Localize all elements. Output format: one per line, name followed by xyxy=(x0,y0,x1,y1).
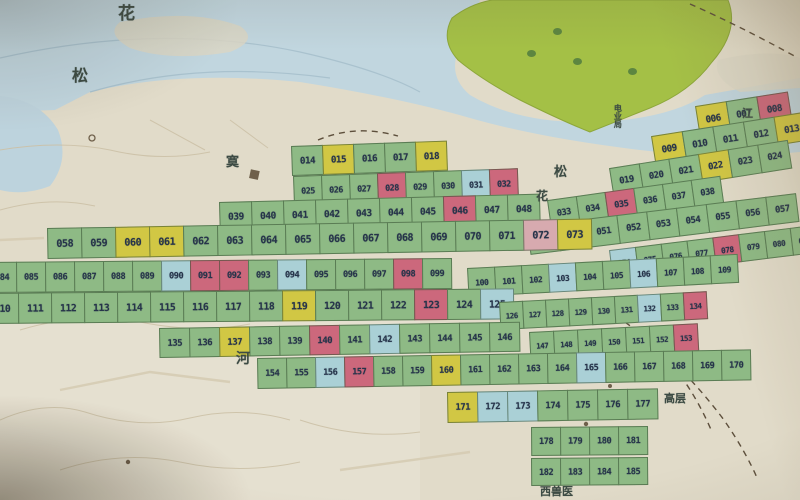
map-labels: 花松寞松花江河高层西兽医电业局 xyxy=(0,0,800,500)
map-label: 西兽医 xyxy=(540,486,573,498)
park-tree-icon xyxy=(628,68,637,75)
map-label: 电业局 xyxy=(614,104,622,128)
park-tree-icon xyxy=(527,50,536,57)
park-tree-icon xyxy=(573,58,582,65)
map-label: 河 xyxy=(236,352,250,367)
map-label: 花 xyxy=(536,190,548,203)
park-tree-icon xyxy=(553,28,562,35)
map-label: 寞 xyxy=(226,156,239,170)
map-label: 花 xyxy=(118,6,135,24)
map-label: 松 xyxy=(554,166,567,180)
map-photo: 0060070080090100110120130140150160170180… xyxy=(0,0,800,500)
map-label: 松 xyxy=(72,68,88,85)
map-label: 高层 xyxy=(664,393,686,405)
map-label: 江 xyxy=(742,108,753,120)
